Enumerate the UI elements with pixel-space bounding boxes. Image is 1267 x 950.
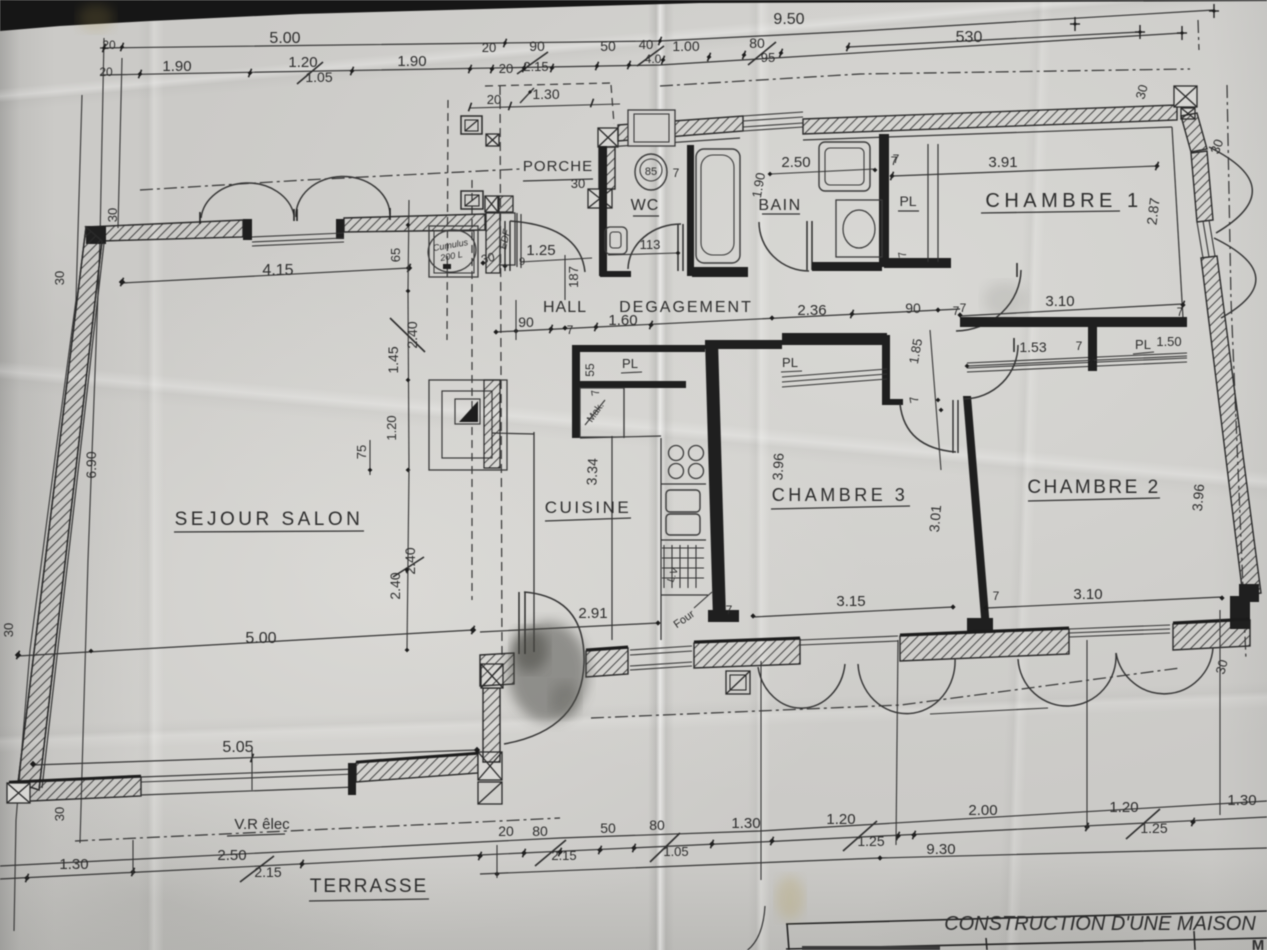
svg-text:1.30: 1.30 [532, 86, 559, 102]
svg-text:V.R êlec: V.R êlec [234, 816, 290, 833]
svg-text:30: 30 [52, 807, 67, 821]
svg-text:90: 90 [529, 38, 545, 54]
svg-text:40: 40 [639, 37, 653, 52]
svg-text:2.91: 2.91 [578, 605, 607, 622]
svg-text:1.50: 1.50 [1156, 334, 1181, 349]
svg-text:4.15: 4.15 [262, 262, 293, 279]
svg-text:BAIN: BAIN [758, 197, 801, 214]
svg-text:30: 30 [105, 208, 120, 222]
svg-text:PL: PL [1135, 337, 1151, 352]
svg-text:SEJOUR SALON: SEJOUR SALON [175, 509, 364, 530]
svg-text:7: 7 [897, 250, 910, 258]
svg-text:1.25: 1.25 [526, 242, 555, 259]
svg-text:5.00: 5.00 [245, 630, 276, 647]
svg-text:9.30: 9.30 [926, 841, 955, 858]
svg-text:530: 530 [956, 29, 983, 46]
svg-text:1.90: 1.90 [749, 171, 768, 199]
svg-text:7: 7 [673, 166, 680, 180]
svg-text:1.90: 1.90 [397, 53, 426, 70]
svg-text:187: 187 [566, 266, 581, 288]
svg-text:3.96: 3.96 [1189, 483, 1207, 512]
svg-text:DEGAGEMENT: DEGAGEMENT [619, 299, 753, 316]
svg-text:WC: WC [631, 197, 660, 214]
svg-text:CUISINE: CUISINE [545, 498, 631, 517]
svg-text:M: M [1252, 937, 1265, 950]
svg-text:1.00: 1.00 [672, 38, 699, 54]
svg-text:PORCHE: PORCHE [523, 158, 593, 175]
svg-text:7: 7 [893, 152, 900, 166]
svg-text:30: 30 [1133, 83, 1151, 101]
svg-text:2.50: 2.50 [781, 154, 810, 171]
svg-text:55: 55 [583, 363, 597, 377]
svg-text:7: 7 [907, 395, 922, 404]
svg-text:6.90: 6.90 [83, 451, 99, 478]
svg-text:20: 20 [498, 823, 514, 839]
svg-text:3.15: 3.15 [836, 593, 865, 610]
svg-text:1.20: 1.20 [826, 811, 855, 828]
svg-text:20: 20 [499, 61, 513, 76]
svg-text:5.00: 5.00 [269, 30, 300, 47]
svg-text:80: 80 [749, 35, 765, 51]
svg-text:3.01: 3.01 [926, 504, 944, 533]
svg-text:PL: PL [782, 355, 798, 370]
svg-text:80: 80 [532, 823, 548, 839]
svg-text:CHAMBRE 1: CHAMBRE 1 [985, 190, 1142, 212]
svg-text:1.30: 1.30 [731, 815, 760, 832]
svg-text:50: 50 [600, 38, 616, 54]
svg-text:9: 9 [519, 256, 525, 268]
svg-text:5.05: 5.05 [222, 739, 253, 756]
svg-text:7: 7 [960, 301, 967, 315]
svg-text:CHAMBRE 3: CHAMBRE 3 [772, 485, 909, 505]
svg-text:90: 90 [905, 300, 921, 316]
svg-text:L.V.: L.V. [666, 564, 682, 584]
svg-text:30: 30 [1213, 658, 1231, 676]
svg-text:75: 75 [354, 445, 369, 459]
svg-text:7: 7 [726, 603, 733, 617]
svg-text:2.36: 2.36 [797, 302, 826, 319]
svg-text:85: 85 [645, 166, 657, 178]
svg-text:HALL: HALL [543, 299, 587, 316]
svg-text:PL: PL [899, 193, 916, 209]
svg-text:CHAMBRE 2: CHAMBRE 2 [1027, 477, 1160, 498]
svg-text:1.30: 1.30 [1227, 792, 1256, 809]
svg-text:3.91: 3.91 [988, 154, 1017, 171]
svg-text:2.15: 2.15 [551, 848, 576, 863]
svg-text:7: 7 [567, 323, 574, 337]
svg-text:1.90: 1.90 [162, 58, 191, 75]
svg-text:2.50: 2.50 [217, 847, 246, 864]
svg-text:3.96: 3.96 [769, 453, 786, 481]
svg-text:30: 30 [1207, 137, 1226, 156]
svg-text:2.15: 2.15 [254, 864, 281, 880]
svg-text:30: 30 [571, 176, 585, 191]
svg-text:20: 20 [99, 65, 113, 79]
svg-text:1.85: 1.85 [906, 337, 925, 365]
svg-text:80: 80 [649, 817, 665, 833]
svg-text:2.00: 2.00 [968, 802, 997, 819]
svg-text:7: 7 [1177, 305, 1184, 319]
svg-text:20: 20 [487, 92, 501, 107]
svg-text:3.10: 3.10 [1073, 586, 1102, 603]
svg-text:7: 7 [993, 589, 1000, 603]
svg-text:2.87: 2.87 [1143, 197, 1162, 226]
svg-text:50: 50 [600, 820, 616, 836]
svg-text:TERRASSE: TERRASSE [310, 876, 428, 897]
svg-text:65: 65 [388, 248, 403, 262]
svg-text:1.45: 1.45 [385, 346, 401, 373]
svg-text:113: 113 [640, 237, 661, 252]
svg-text:1.53: 1.53 [1019, 339, 1046, 355]
svg-text:7: 7 [590, 388, 603, 396]
svg-text:7: 7 [1076, 339, 1083, 353]
svg-text:90: 90 [518, 314, 534, 330]
svg-text:9.50: 9.50 [773, 11, 804, 28]
svg-text:CONSTRUCTION D'UNE MAISON: CONSTRUCTION D'UNE MAISON [944, 913, 1256, 935]
svg-text:1.05: 1.05 [305, 69, 332, 85]
svg-text:Four: Four [672, 608, 698, 631]
svg-text:20: 20 [482, 40, 496, 55]
svg-text:30: 30 [52, 271, 67, 285]
svg-text:1.20: 1.20 [1109, 799, 1138, 816]
svg-text:30: 30 [1, 623, 16, 637]
svg-text:3.10: 3.10 [1045, 293, 1074, 310]
svg-text:1.30: 1.30 [59, 856, 88, 873]
svg-text:3.34: 3.34 [583, 458, 600, 486]
svg-text:PL: PL [622, 356, 638, 371]
svg-text:1.20: 1.20 [384, 415, 399, 440]
